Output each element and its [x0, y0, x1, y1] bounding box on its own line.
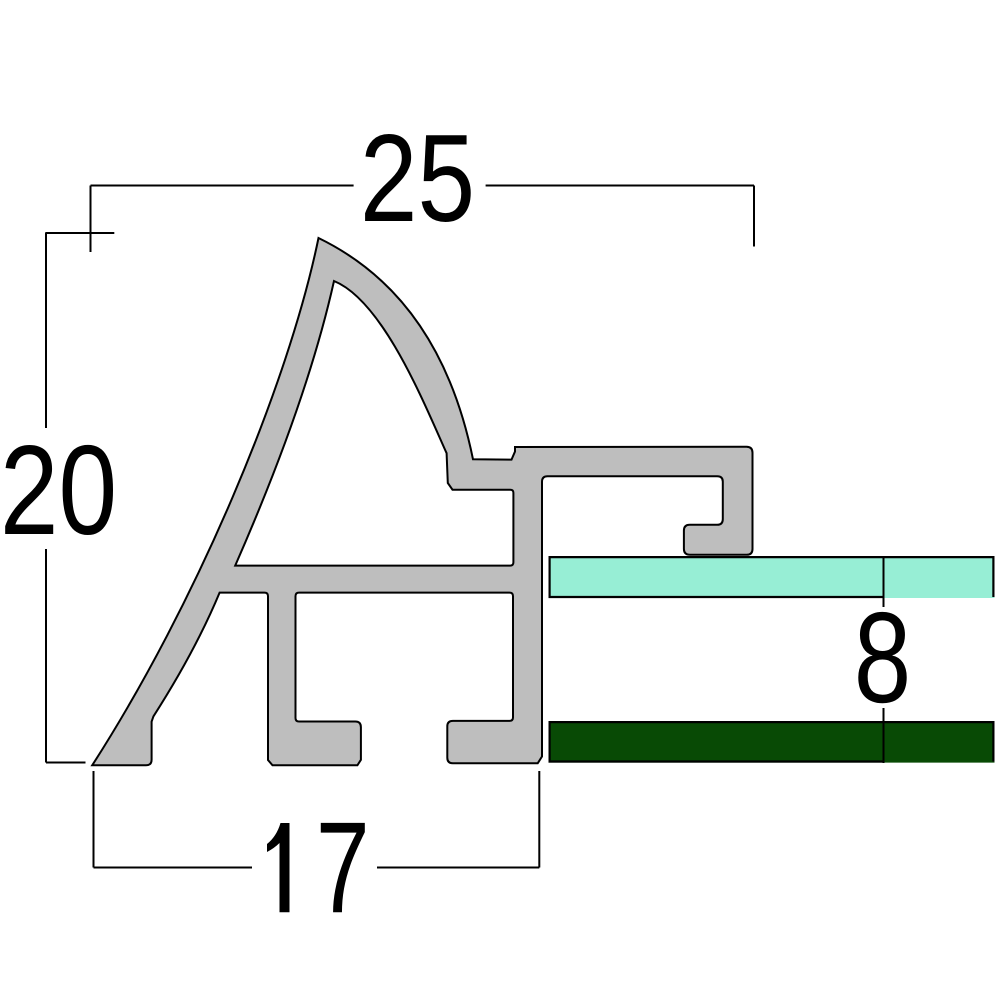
svg-text:25: 25	[360, 110, 475, 248]
svg-text:7: 7	[316, 795, 370, 940]
svg-text:20: 20	[0, 419, 117, 562]
svg-text:8: 8	[854, 585, 911, 730]
